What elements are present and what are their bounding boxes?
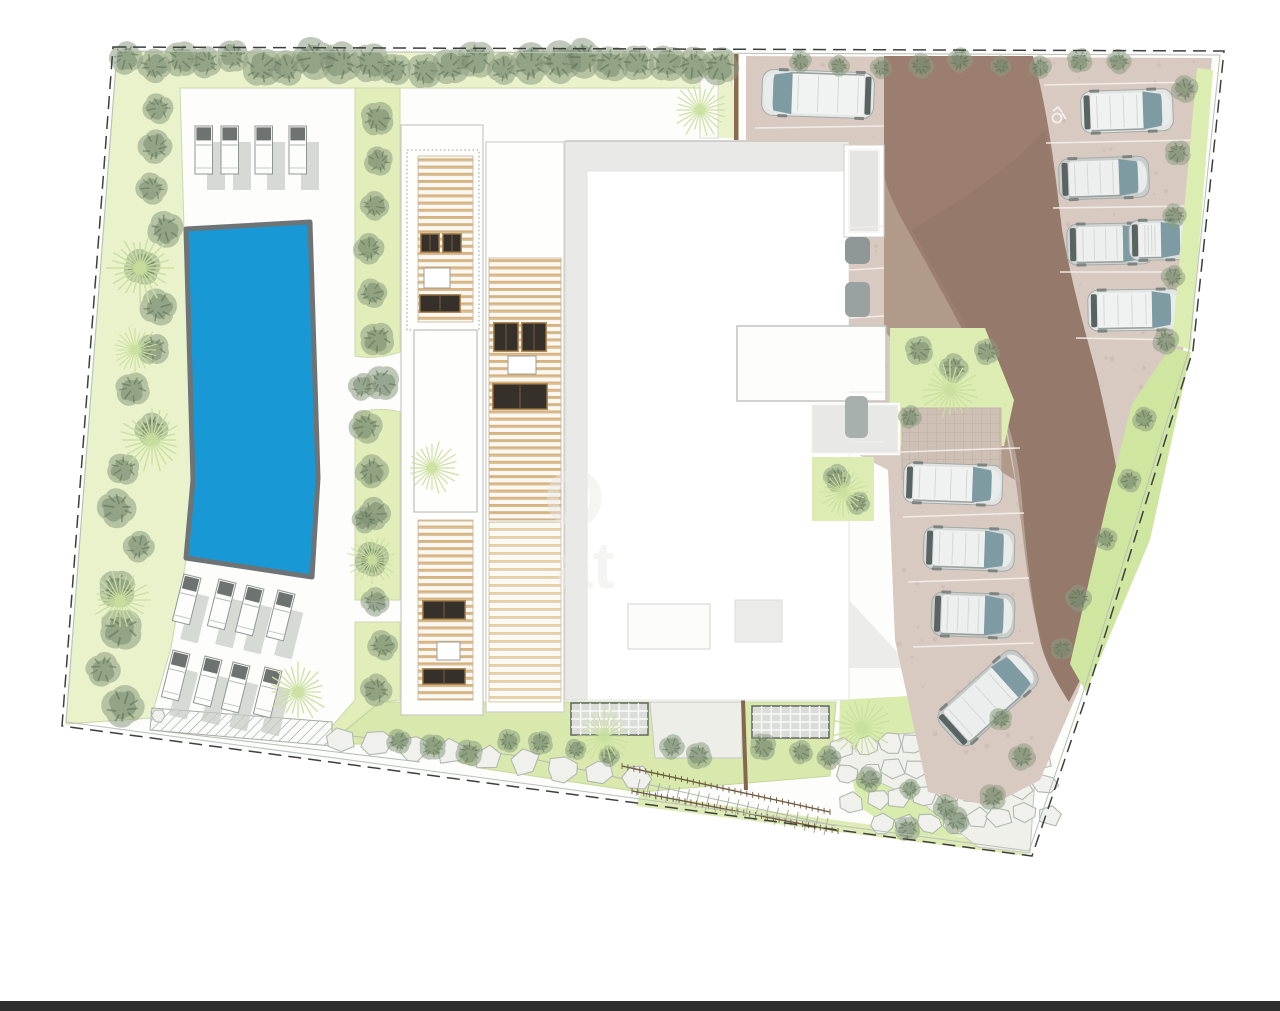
svg-text:at: at bbox=[556, 528, 615, 602]
